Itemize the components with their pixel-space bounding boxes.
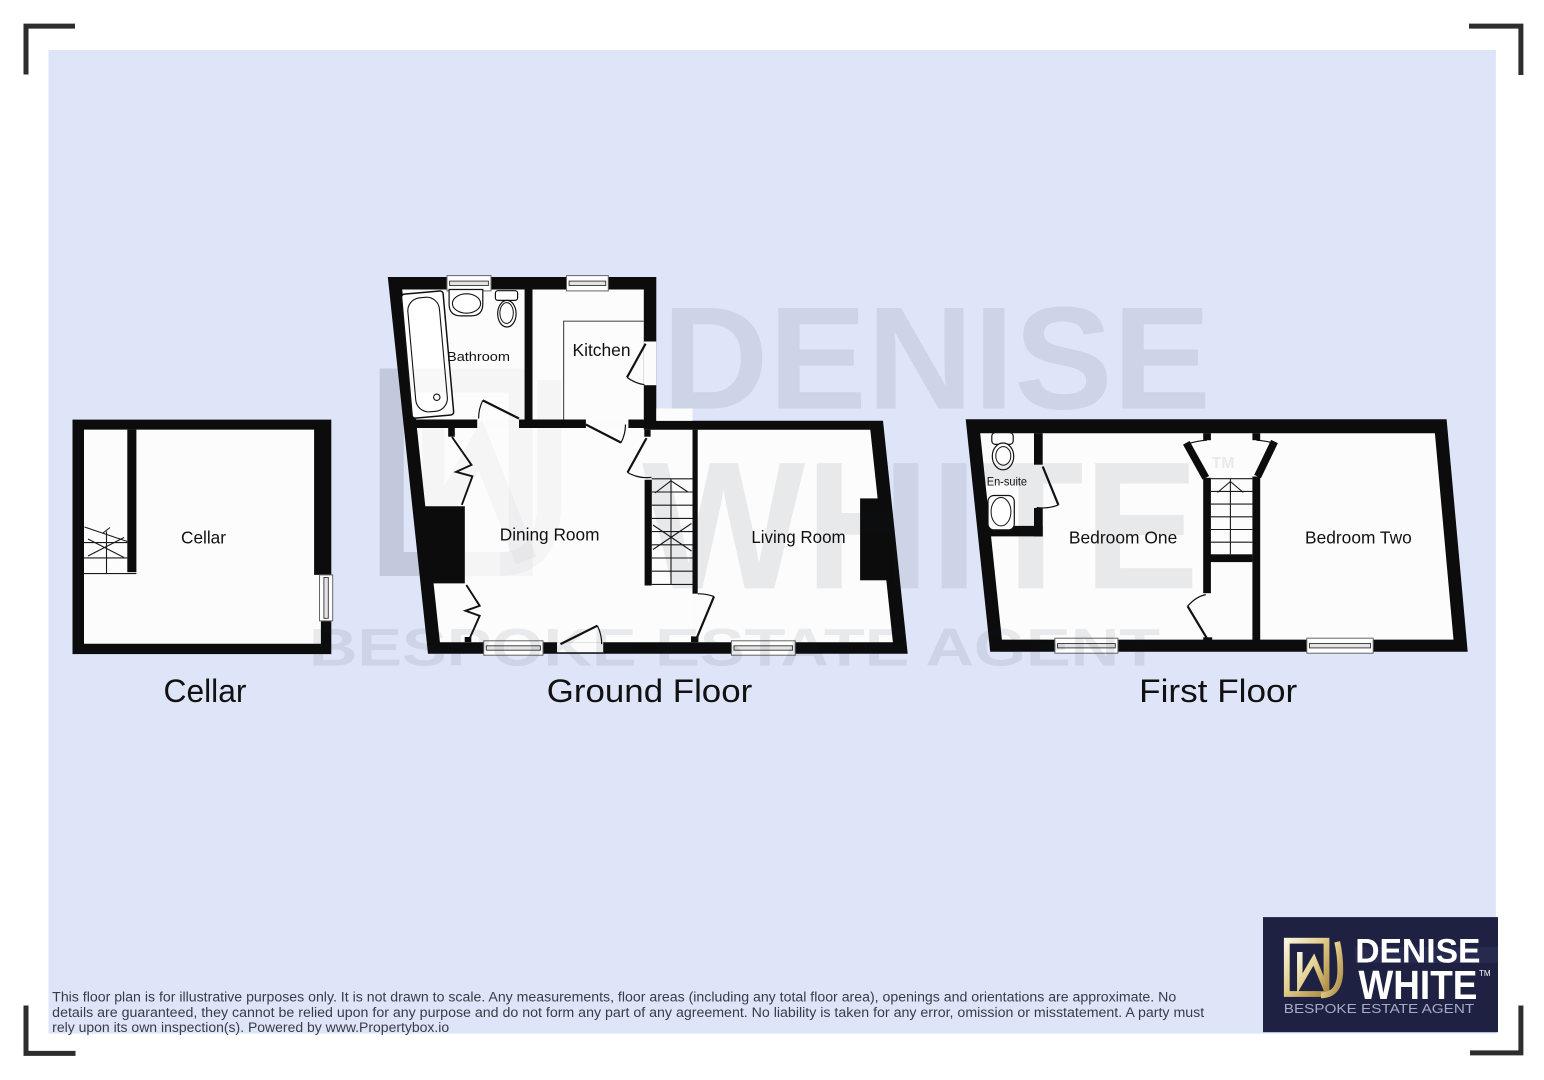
svg-text:Bedroom Two: Bedroom Two — [1305, 527, 1412, 547]
svg-text:First Floor: First Floor — [1139, 673, 1297, 709]
svg-text:Bathroom: Bathroom — [447, 349, 510, 364]
svg-text:Cellar: Cellar — [164, 673, 247, 709]
svg-text:WHITE: WHITE — [1358, 962, 1477, 1008]
svg-text:Ground Floor: Ground Floor — [547, 673, 753, 709]
svg-text:This floor plan is for illustr: This floor plan is for illustrative purp… — [52, 990, 1176, 1005]
svg-text:BESPOKE ESTATE AGENT: BESPOKE ESTATE AGENT — [1284, 1002, 1475, 1016]
svg-text:BESPOKE ESTATE AGENT: BESPOKE ESTATE AGENT — [309, 619, 1160, 678]
svg-text:Cellar: Cellar — [181, 528, 226, 548]
svg-text:Kitchen: Kitchen — [573, 340, 631, 360]
svg-text:TM: TM — [1212, 455, 1235, 472]
svg-text:TM: TM — [1479, 969, 1491, 978]
svg-text:rely upon its own inspection(s: rely upon its own inspection(s). Powered… — [52, 1020, 449, 1035]
svg-text:WHITE: WHITE — [642, 423, 1199, 627]
svg-text:details are guaranteed, they c: details are guaranteed, they cannot be r… — [52, 1005, 1204, 1020]
svg-text:DENISE: DENISE — [662, 277, 1211, 440]
